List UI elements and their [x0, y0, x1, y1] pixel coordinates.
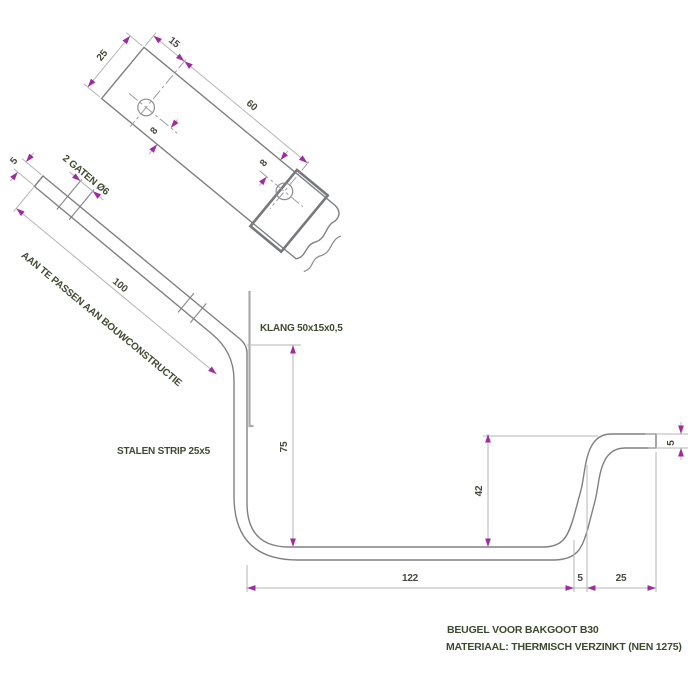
strip-end-cap — [34, 176, 43, 186]
dim-profile-drop: 75 — [279, 441, 290, 452]
dim-edge-length: 100 — [110, 276, 130, 295]
face-dim-lines — [76, 18, 310, 235]
profile-outline-inner — [43, 176, 656, 547]
label-klang: KLANG 50x15x0,5 — [260, 323, 343, 334]
dim-face-width: 25 — [95, 48, 111, 64]
technical-drawing-page: 25 15 60 8 8 5 2 GATEN Ø6 — [0, 0, 700, 700]
label-steel-strip: STALEN STRIP 25x5 — [117, 446, 211, 457]
edge-view-annotations: 5 2 GATEN Ø6 100 AAN TE PASSEN AAN BOUWC… — [0, 127, 264, 403]
profile-dim-lines — [247, 345, 688, 592]
klang-strip-line — [250, 291, 254, 426]
dim-face-hole1-edge: 8 — [148, 125, 160, 137]
hole-2 — [273, 180, 296, 203]
profile-outline-outer — [34, 186, 656, 560]
profile-view: 75 42 122 5 25 5 — [34, 176, 688, 592]
bracket-technical-drawing: 25 15 60 8 8 5 2 GATEN Ø6 — [0, 0, 700, 700]
label-holes: 2 GATEN Ø6 — [60, 153, 111, 198]
hole-center-lines — [113, 46, 327, 244]
dim-face-hole2-edge: 8 — [258, 157, 270, 169]
drawing-title: BEUGEL VOOR BAKGOOT B30 — [447, 624, 599, 636]
strip-face-outline — [102, 47, 344, 263]
face-dim-arrows — [80, 20, 309, 232]
dim-edge-thickness: 5 — [8, 155, 20, 167]
dim-profile-rise: 42 — [474, 485, 485, 496]
break-line — [304, 232, 341, 275]
dim-face-hole-spacing: 60 — [244, 98, 260, 114]
dim-profile-bottom: 122 — [402, 573, 419, 584]
face-view: 25 15 60 8 8 — [69, 5, 372, 282]
dim-profile-lip: 25 — [616, 573, 627, 584]
drawing-material-note: MATERIAAL: THERMISCH VERZINKT (NEN 1275) — [446, 641, 682, 653]
profile-dim-arrows — [247, 345, 684, 591]
dim-profile-lip-thickness: 5 — [666, 440, 677, 446]
dim-profile-offset: 5 — [577, 573, 583, 584]
label-fit-note: AAN TE PASSEN AAN BOUWCONSTRUCTIE — [19, 250, 184, 389]
